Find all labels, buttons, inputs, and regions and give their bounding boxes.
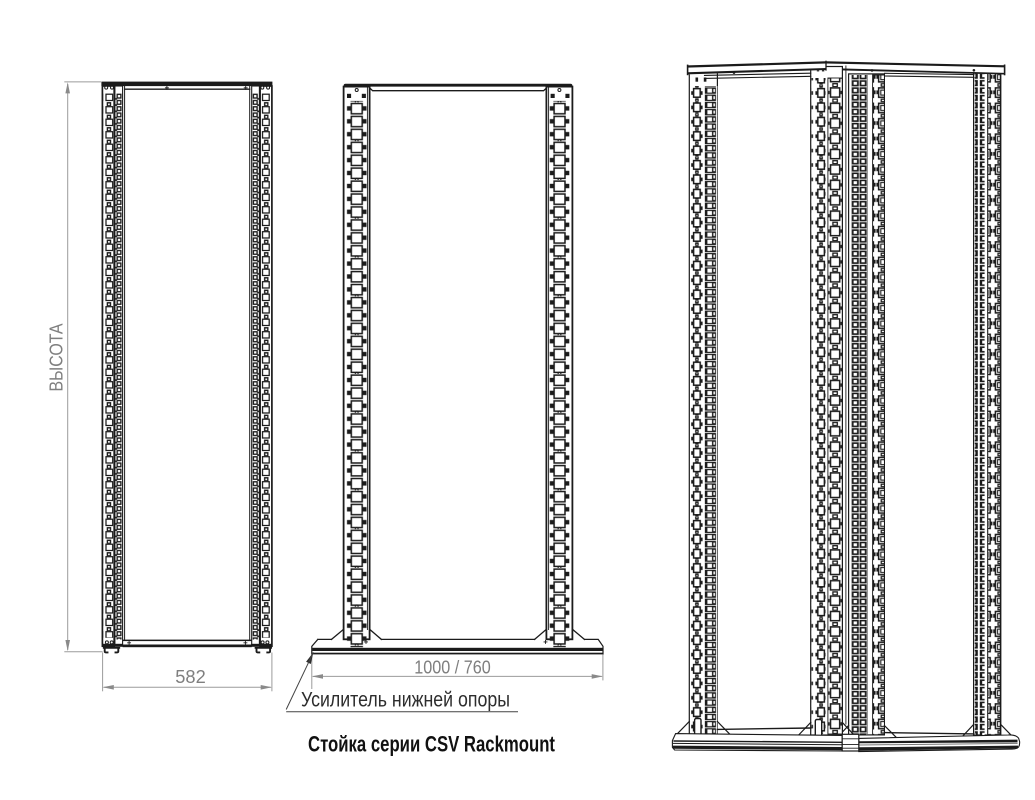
svg-text:1000 / 760: 1000 / 760 [414,657,491,678]
svg-text:ВЫСОТА: ВЫСОТА [47,324,67,392]
svg-text:Усилитель нижней опоры: Усилитель нижней опоры [301,689,510,712]
svg-text:582: 582 [175,666,206,687]
svg-text:Стойка серии CSV Rackmount: Стойка серии CSV Rackmount [308,732,556,757]
